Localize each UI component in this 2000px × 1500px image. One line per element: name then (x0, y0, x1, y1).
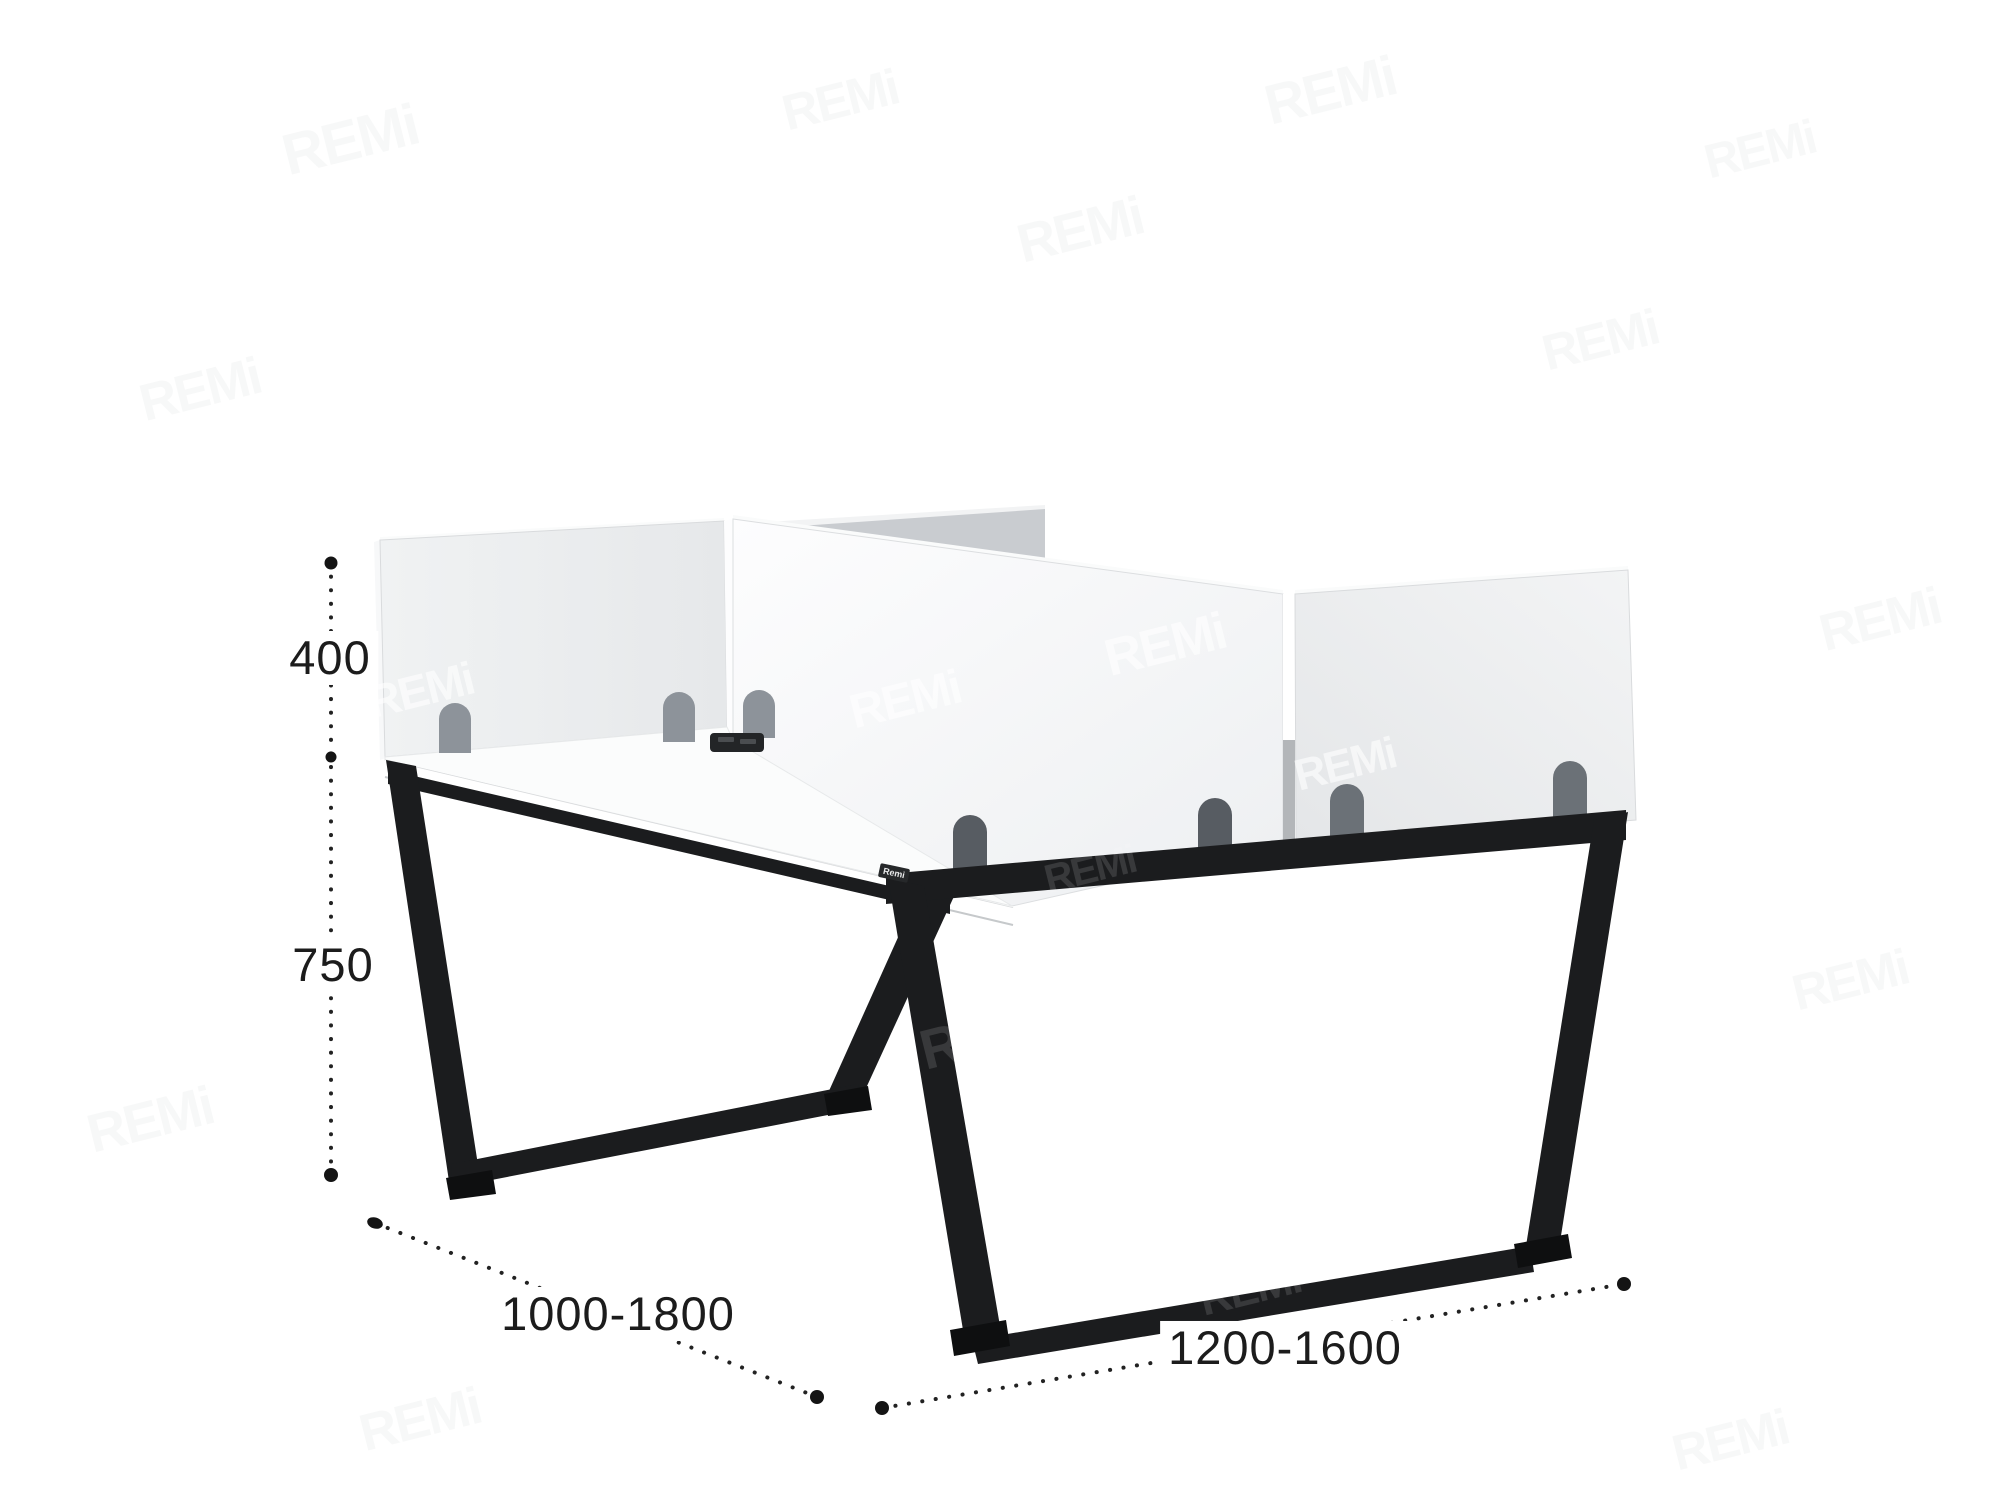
screen-height-label: 400 (281, 631, 378, 685)
dimension-dot (366, 1215, 385, 1230)
cable-arch (439, 703, 471, 753)
dimension-dot (325, 557, 338, 570)
grommet-slot (740, 739, 756, 744)
depth-range-label: 1000-1800 (493, 1287, 743, 1341)
dimension-dot (326, 752, 337, 763)
dimension-dot (324, 1168, 338, 1182)
right-leg (886, 810, 1628, 1364)
width-range-label: 1200-1600 (1160, 1321, 1410, 1375)
dimension-dot (875, 1401, 889, 1415)
right-leg-rear-strut (1526, 812, 1628, 1246)
product-image: 400 750 1000-1800 1200-1600 Remi REMi RE… (0, 0, 2000, 1500)
cable-arch (743, 690, 775, 738)
left-leg-bottom-bar (450, 1084, 864, 1188)
grommet-slot (718, 737, 734, 742)
right-leg-front-strut (888, 878, 1000, 1336)
cable-arch (663, 692, 695, 742)
dimension-dot (810, 1390, 824, 1404)
screen-gap-right-upper (1283, 594, 1295, 740)
desk-height-label: 750 (284, 938, 381, 992)
left-leg-front-strut (386, 760, 480, 1188)
screen-gap-right-lower (1283, 740, 1295, 846)
desk-rendering (0, 0, 2000, 1500)
right-leg-foot (1514, 1234, 1572, 1268)
dimension-dot (1617, 1277, 1631, 1291)
